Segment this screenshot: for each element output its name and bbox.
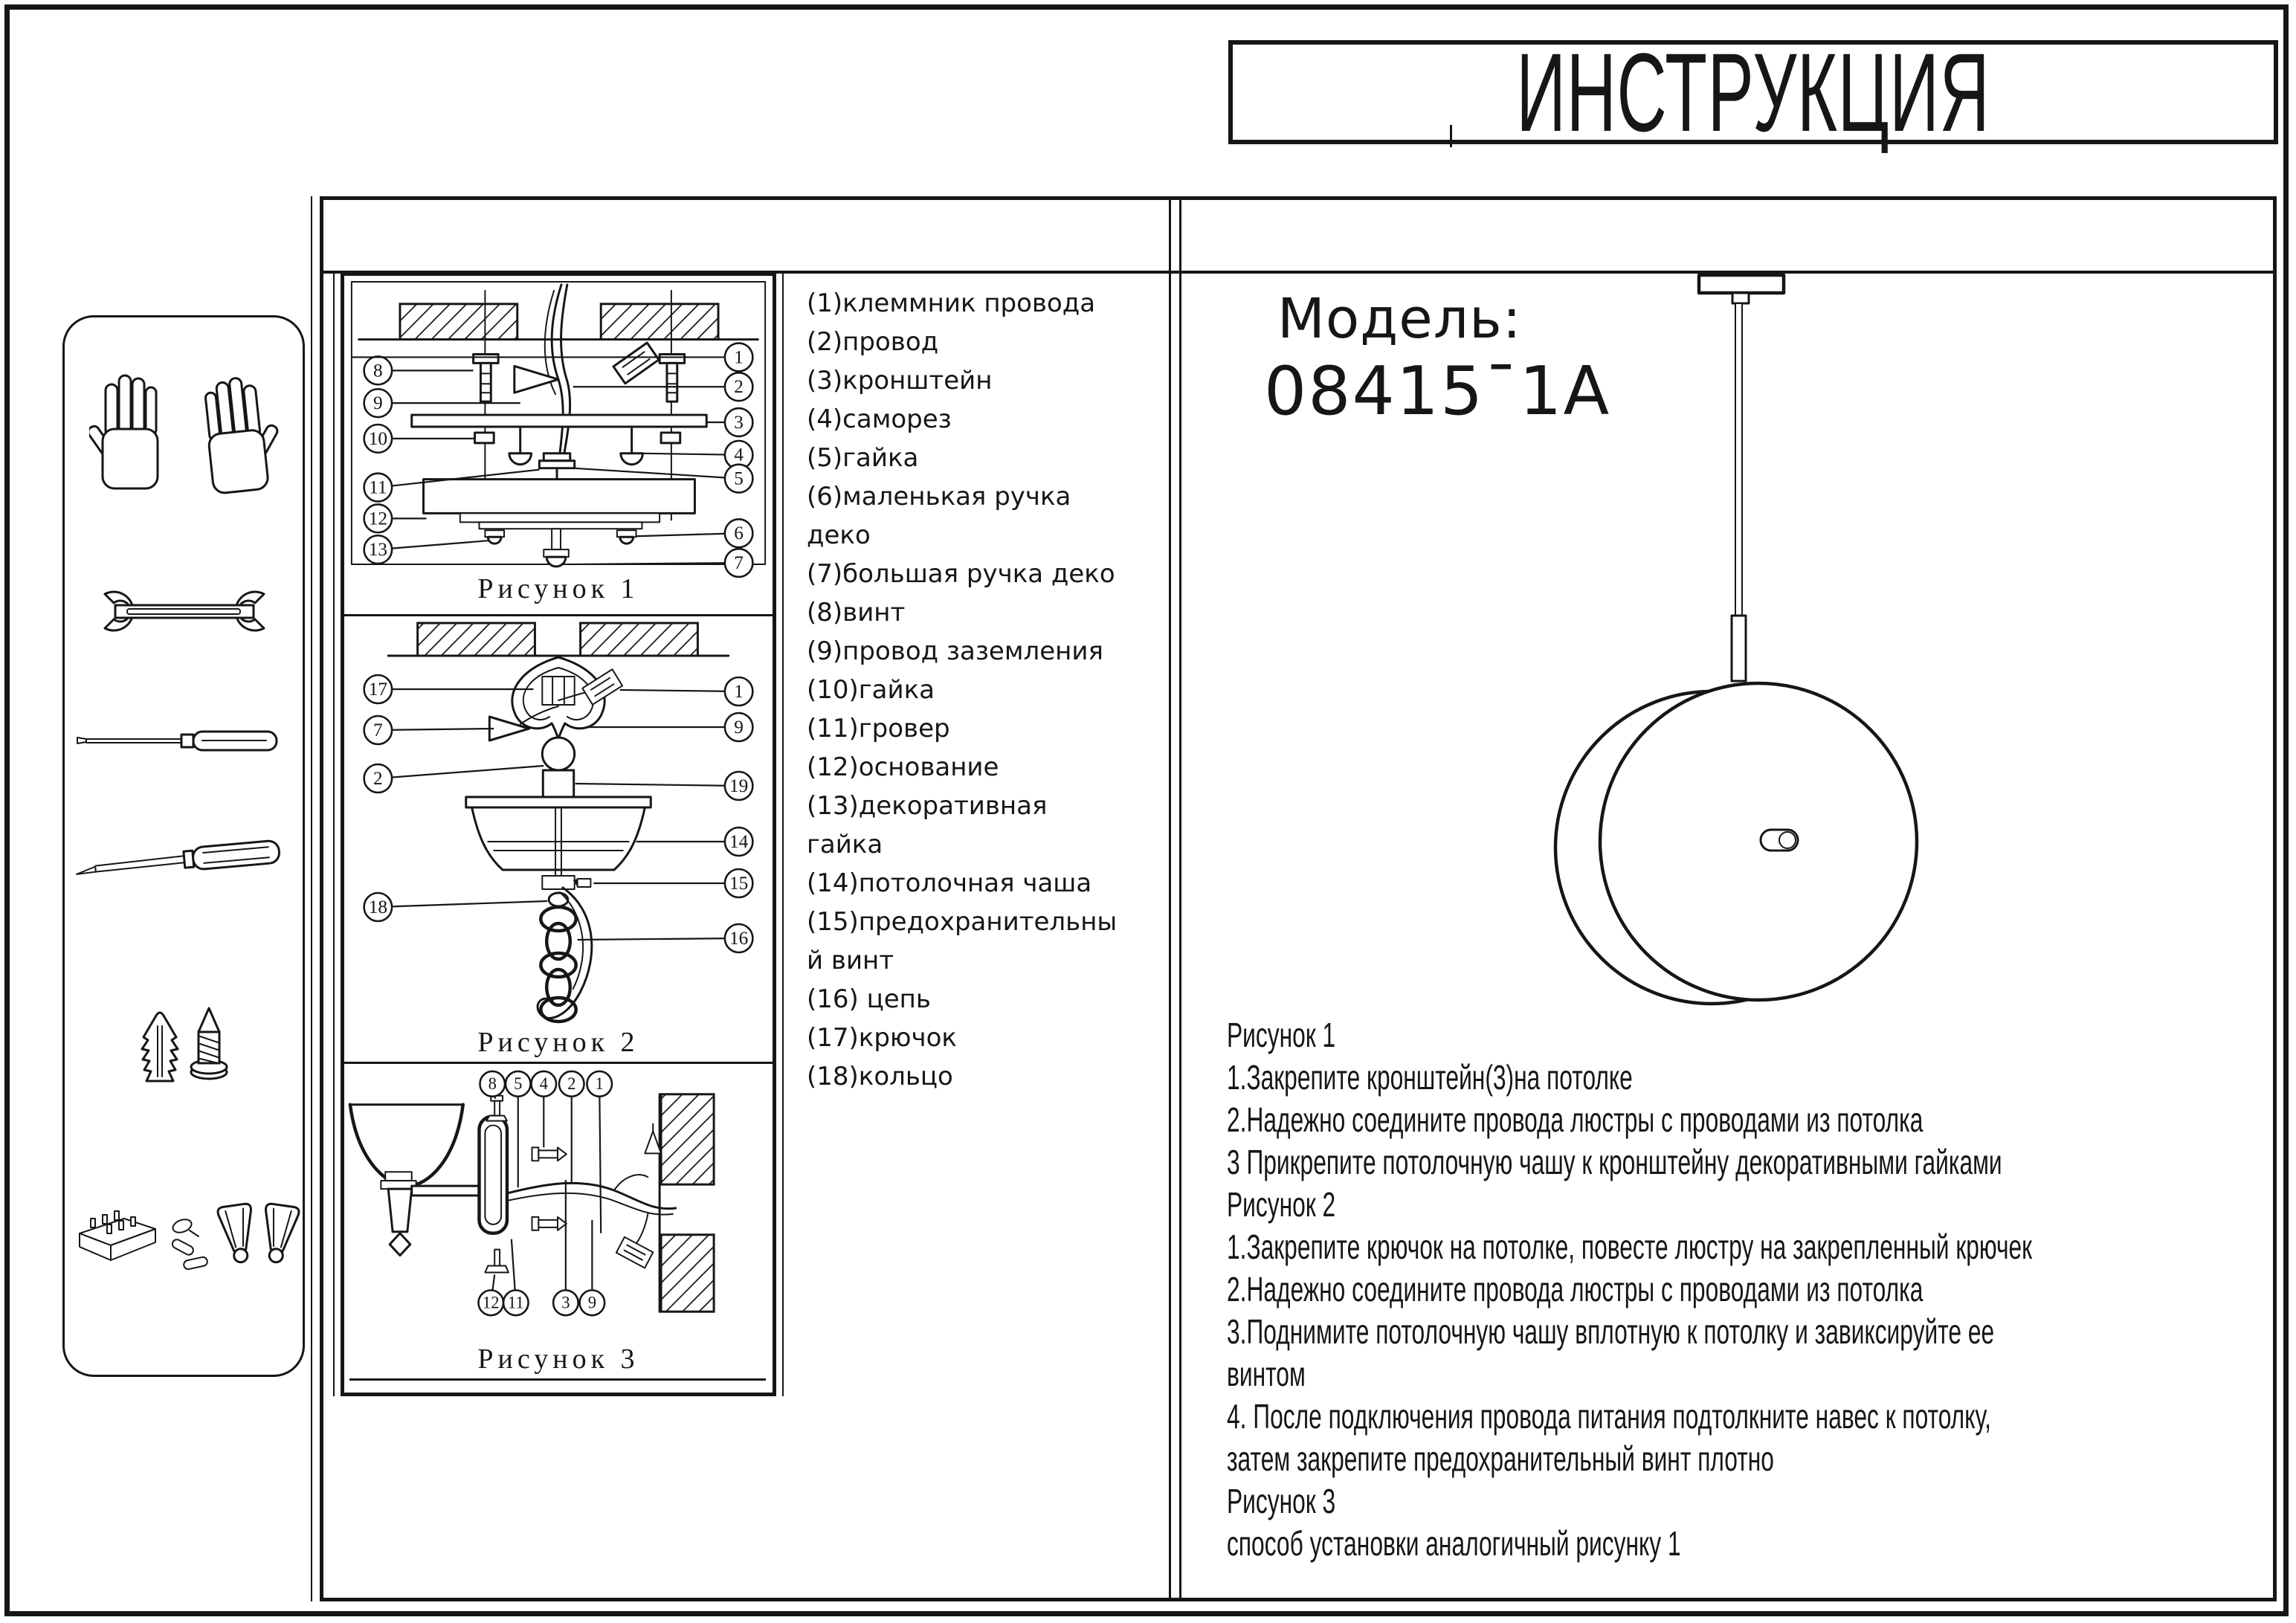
callout-number: 9 [588, 1293, 596, 1311]
instruction-line: способ установки аналогичный рисунку 1 [1227, 1523, 2283, 1565]
parts-list-item: (7)большая ручка деко [807, 555, 1126, 593]
pendant-rod [1735, 303, 1742, 616]
callout-number: 15 [729, 872, 748, 894]
title-box: ИНСТРУКЦИЯ [1228, 40, 2278, 144]
wire-bundle [545, 285, 570, 454]
callout-number: 8 [488, 1074, 497, 1093]
wire-connector-cap [489, 717, 529, 740]
parts-list-item: (17)крючок [807, 1019, 1126, 1057]
column-divider-line [1179, 198, 1181, 1598]
callout-number: 2 [567, 1074, 575, 1093]
wire [636, 1214, 648, 1244]
nut [475, 433, 494, 443]
callout-number: 7 [373, 719, 383, 740]
rod-sleeve [1732, 616, 1746, 681]
base-step [479, 522, 642, 529]
pendant-lamp-drawing [1547, 274, 2067, 1017]
large-deco-knob [544, 529, 569, 567]
wall-backplate [479, 1117, 506, 1233]
callout-number: 8 [373, 360, 383, 381]
screw [191, 1008, 227, 1079]
ceiling-hatch [400, 304, 517, 340]
instruction-line: 1.Закрепите крючок на потолке, повесте л… [1227, 1226, 2283, 1268]
instruction-line: винтом [1227, 1353, 2283, 1395]
ceiling-canopy [466, 797, 651, 889]
parts-list: (1)клеммник провода(2)провод(3)кронштейн… [807, 284, 1126, 1096]
callout-leader-line [573, 468, 739, 479]
wall-hatch [661, 1094, 714, 1184]
mounting-screw [532, 1147, 566, 1230]
callout-number: 3 [734, 412, 744, 433]
instruction-line: 2.Надежно соедините провода люстры с про… [1227, 1099, 2283, 1141]
small-fasteners [171, 1217, 208, 1270]
wire [614, 1175, 648, 1190]
model-label: Модель: [1277, 287, 1522, 351]
terminal-block [80, 1211, 155, 1260]
callout-number: 4 [734, 445, 744, 465]
anchor-pin [485, 1250, 509, 1273]
instruction-line: затем закрепите предохранительный винт п… [1227, 1438, 2283, 1480]
wire [520, 706, 558, 724]
figure-3-caption: Рисунок 3 [344, 1341, 773, 1377]
ring [549, 893, 568, 906]
bracket-bar [412, 415, 706, 427]
wire-clamp-nut [539, 454, 574, 480]
callout-leader-line [378, 766, 544, 778]
work-gloves-icon [89, 362, 283, 503]
callout-leader-line [575, 784, 739, 786]
parts-list-item: (12)основание [807, 748, 1126, 787]
wire-terminal [582, 669, 622, 704]
callout-number: 11 [369, 477, 387, 497]
callout-number: 1 [596, 1074, 604, 1093]
callout-number: 9 [734, 716, 744, 738]
parts-list-item: (10)гайка [807, 671, 1126, 709]
sconce-arm [412, 1186, 480, 1196]
callout-leader-line [599, 1084, 601, 1233]
deco-ball [542, 738, 574, 770]
caption-underline [349, 1378, 766, 1381]
ceiling-hatch [601, 304, 718, 340]
decorative-nut [543, 770, 573, 797]
panel-edge-line [782, 272, 784, 1396]
figure-2-hook-mount-diagram: 1772181919141516 [344, 619, 773, 1025]
ceiling-plate [1699, 275, 1784, 293]
callout-number: 5 [514, 1074, 522, 1093]
callout-leader-line [378, 901, 547, 907]
base-plate [424, 480, 695, 514]
callout-number: 3 [561, 1293, 570, 1311]
nut [661, 433, 680, 443]
callout-number: 7 [734, 552, 744, 573]
ceiling-hatch [581, 623, 698, 656]
callout-number: 16 [729, 927, 748, 949]
instruction-sheet-page: ИНСТРУКЦИЯ [0, 0, 2296, 1623]
mounting-bolt [660, 354, 685, 401]
wall-anchor-and-screw-icon [121, 998, 248, 1087]
parts-list-item: (5)гайка [807, 439, 1126, 477]
parts-list-item: (3)кронштейн [807, 361, 1126, 400]
wing-anchor [217, 1203, 258, 1264]
callout-number: 5 [734, 468, 744, 488]
parts-list-item: (11)гровер [807, 709, 1126, 748]
panel-edge-line [333, 272, 335, 1396]
callout-number: 10 [369, 428, 387, 449]
callout-number: 1 [734, 346, 744, 367]
callout-number: 1 [734, 680, 744, 702]
parts-list-item: (6)маленькая ручка деко [807, 477, 1126, 555]
hanging-screw [509, 427, 643, 465]
set-screw [573, 879, 591, 887]
chain [541, 907, 575, 1022]
lamp-disc-front [1600, 683, 1917, 1000]
figure-divider [344, 1062, 773, 1064]
callout-number: 11 [508, 1293, 524, 1311]
mounting-hardware-icon [71, 1195, 301, 1277]
callout-number: 13 [369, 539, 387, 560]
ceiling-hatch [418, 623, 535, 656]
figure-1-ceiling-mount-diagram: 89101112131234567 [344, 276, 773, 570]
instruction-line: Рисунок 2 [1227, 1184, 2283, 1226]
callout-leader-line [378, 729, 494, 730]
tools-sidebar [62, 315, 305, 1377]
callout-number: 6 [734, 523, 744, 543]
callout-number: 17 [369, 678, 387, 700]
instruction-line: 3.Поднимите потолочную чашу вплотную к п… [1227, 1311, 2283, 1353]
parts-list-item: (1)клеммник провода [807, 284, 1126, 323]
lamp-holder [381, 1172, 416, 1255]
callout-number: 9 [373, 393, 383, 413]
wire-connector-cap [515, 366, 558, 393]
instruction-line: 4. После подключения провода питания под… [1227, 1395, 2283, 1438]
callout-number: 12 [369, 508, 387, 529]
scan-artifact-line [1450, 125, 1452, 147]
callout-leader-line [578, 938, 739, 940]
open-end-wrench-icon [77, 585, 292, 637]
figure-divider [344, 614, 773, 616]
parts-list-item: (8)винт [807, 593, 1126, 632]
callout-leader-line [636, 533, 739, 536]
instruction-line: Рисунок 1 [1227, 1014, 2283, 1056]
instruction-line: 1.Закрепите кронштейн(3)на потолке [1227, 1056, 2283, 1099]
callout-leader-line [378, 541, 488, 549]
callout-number: 4 [540, 1074, 548, 1093]
parts-list-item: (2)провод [807, 323, 1126, 361]
column-divider-line [1169, 198, 1171, 1598]
parts-list-item: (9)провод заземления [807, 632, 1126, 671]
figure-2-caption: Рисунок 2 [344, 1025, 773, 1060]
instruction-line: Рисунок 3 [1227, 1480, 2283, 1523]
callout-number: 19 [729, 775, 748, 796]
parts-list-item: (14)потолочная чаша [807, 864, 1126, 903]
instruction-line: 3 Прикрепите потолочную чашу к кронштейн… [1227, 1141, 2283, 1184]
disc-switch-knob [1779, 832, 1796, 848]
callout-number: 2 [734, 376, 744, 397]
mounting-bolt [474, 354, 499, 401]
wall-hatch [661, 1235, 714, 1311]
wire-terminal [616, 1237, 653, 1268]
page-title: ИНСТРУКЦИЯ [1516, 28, 1990, 157]
wing-anchor [259, 1203, 300, 1264]
callout-number: 14 [729, 830, 749, 852]
content-edge-line [311, 196, 312, 1601]
installation-instructions: Рисунок 11.Закрепите кронштейн(3)на пото… [1227, 1014, 2283, 1565]
parts-list-item: (15)предохранительный винт [807, 903, 1126, 980]
instruction-line: 2.Надежно соедините провода люстры с про… [1227, 1268, 2283, 1311]
pointed-screwdriver-icon [74, 838, 297, 884]
callout-number: 12 [483, 1293, 500, 1311]
callout-number: 18 [369, 896, 387, 917]
parts-list-item: (18)кольцо [807, 1057, 1126, 1096]
wire-terminal [613, 343, 659, 384]
figure-3-wall-mount-diagram: 85421121139 [344, 1066, 773, 1340]
parts-list-item: (4)саморез [807, 400, 1126, 439]
callout-number: 2 [373, 767, 383, 789]
flat-screwdriver-icon [74, 723, 297, 758]
parts-list-item: (13)декоративная гайка [807, 787, 1126, 864]
base-step [460, 513, 660, 522]
callout-leader-line [620, 690, 739, 691]
safety-pin [486, 1096, 507, 1121]
plate-neck [1732, 293, 1749, 303]
figure-1-caption: Рисунок 1 [344, 571, 773, 607]
parts-list-item: (16) цепь [807, 980, 1126, 1019]
